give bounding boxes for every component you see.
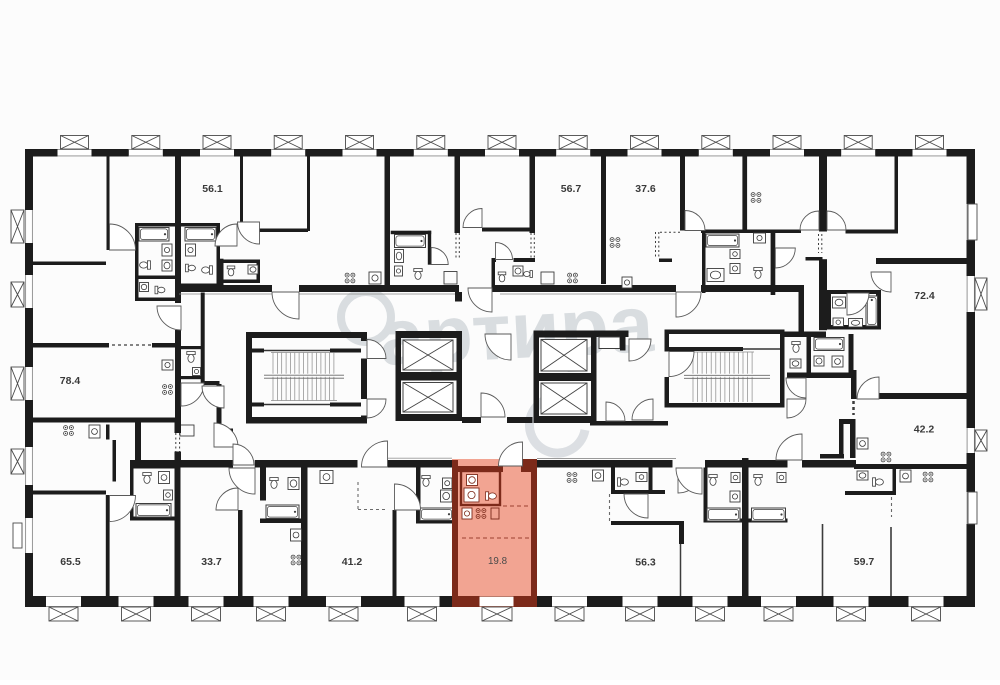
svg-text:33.7: 33.7 [201,556,222,568]
svg-text:19.8: 19.8 [488,556,508,567]
svg-text:56.3: 56.3 [635,557,656,569]
svg-text:41.2: 41.2 [342,556,363,568]
svg-text:37.6: 37.6 [635,183,656,195]
svg-text:65.5: 65.5 [60,556,81,568]
svg-text:78.4: 78.4 [60,375,81,387]
svg-text:59.7: 59.7 [854,556,875,568]
svg-text:56.1: 56.1 [202,183,223,195]
svg-text:72.4: 72.4 [914,290,935,302]
svg-text:56.7: 56.7 [561,183,582,195]
svg-text:42.2: 42.2 [914,424,935,436]
